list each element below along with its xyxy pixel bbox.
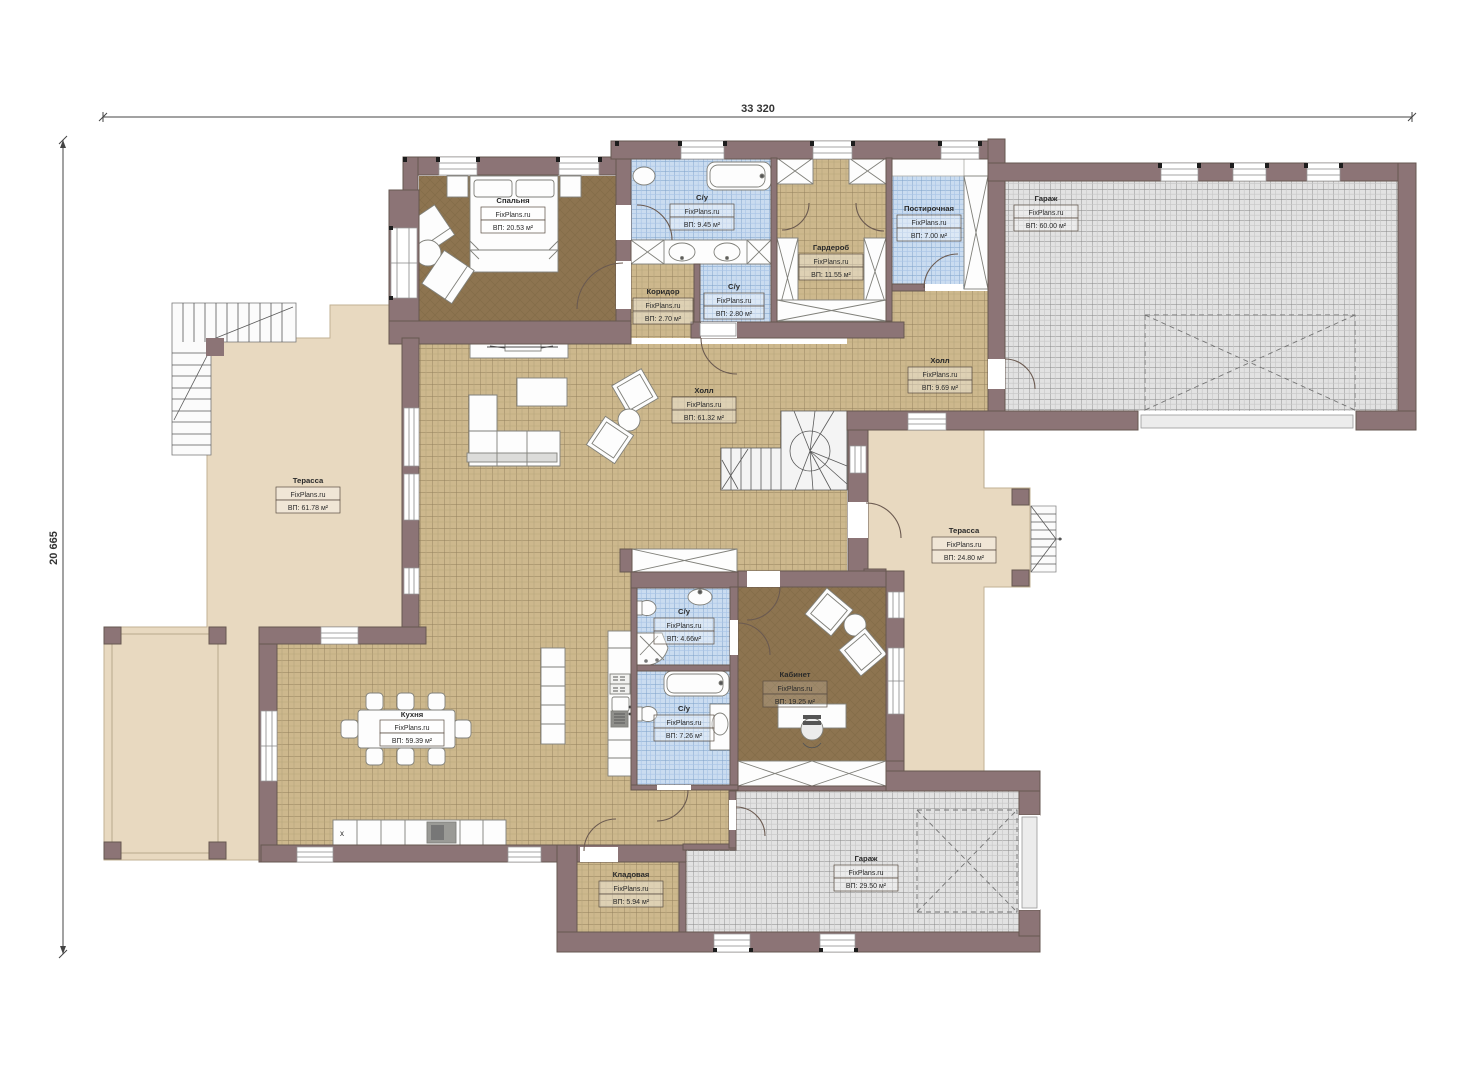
svg-text:FixPlans.ru: FixPlans.ru <box>684 209 719 216</box>
svg-text:FixPlans.ru: FixPlans.ru <box>666 720 701 727</box>
svg-text:ВП: 4.66м²: ВП: 4.66м² <box>667 636 702 643</box>
svg-text:Холл: Холл <box>930 356 949 365</box>
svg-text:ВП: 59.39 м²: ВП: 59.39 м² <box>392 738 433 745</box>
svg-text:FixPlans.ru: FixPlans.ru <box>686 402 721 409</box>
svg-text:FixPlans.ru: FixPlans.ru <box>848 870 883 877</box>
svg-text:FixPlans.ru: FixPlans.ru <box>645 303 680 310</box>
svg-text:20 665: 20 665 <box>48 531 60 565</box>
svg-text:ВП: 61.78 м²: ВП: 61.78 м² <box>288 505 329 512</box>
svg-text:ВП: 24.80 м²: ВП: 24.80 м² <box>944 555 985 562</box>
svg-text:ВП: 2.80 м²: ВП: 2.80 м² <box>716 311 753 318</box>
svg-text:FixPlans.ru: FixPlans.ru <box>777 686 812 693</box>
svg-text:С/у: С/у <box>678 704 691 713</box>
svg-text:FixPlans.ru: FixPlans.ru <box>394 725 429 732</box>
svg-text:FixPlans.ru: FixPlans.ru <box>290 492 325 499</box>
svg-text:Гараж: Гараж <box>1035 194 1059 203</box>
svg-text:С/у: С/у <box>728 282 741 291</box>
svg-text:FixPlans.ru: FixPlans.ru <box>911 220 946 227</box>
svg-text:FixPlans.ru: FixPlans.ru <box>813 259 848 266</box>
svg-text:FixPlans.ru: FixPlans.ru <box>1028 210 1063 217</box>
svg-text:Постирочная: Постирочная <box>904 204 954 213</box>
svg-text:FixPlans.ru: FixPlans.ru <box>716 298 751 305</box>
svg-text:Холл: Холл <box>694 386 713 395</box>
svg-text:ВП: 11.55 м²: ВП: 11.55 м² <box>811 272 851 279</box>
svg-text:ВП: 20.53 м²: ВП: 20.53 м² <box>493 225 534 232</box>
svg-text:Терасса: Терасса <box>949 526 980 535</box>
svg-text:Терасса: Терасса <box>293 476 324 485</box>
svg-text:ВП: 29.50 м²: ВП: 29.50 м² <box>846 883 887 890</box>
svg-text:ВП: 19.25 м²: ВП: 19.25 м² <box>775 699 816 706</box>
svg-text:ВП: 60.00 м²: ВП: 60.00 м² <box>1026 223 1067 230</box>
svg-text:ВП: 9.69 м²: ВП: 9.69 м² <box>922 385 959 392</box>
svg-text:FixPlans.ru: FixPlans.ru <box>946 542 981 549</box>
svg-text:С/у: С/у <box>696 193 709 202</box>
svg-text:ВП: 9.45 м²: ВП: 9.45 м² <box>684 222 721 229</box>
svg-text:ВП: 5.94 м²: ВП: 5.94 м² <box>613 899 650 906</box>
svg-text:ВП: 7.00 м²: ВП: 7.00 м² <box>911 233 948 240</box>
svg-text:ВП: 2.70 м²: ВП: 2.70 м² <box>645 316 682 323</box>
svg-text:FixPlans.ru: FixPlans.ru <box>495 212 530 219</box>
svg-text:x: x <box>340 829 344 838</box>
svg-text:ВП: 61.32 м²: ВП: 61.32 м² <box>684 415 725 422</box>
svg-text:Кухня: Кухня <box>401 710 423 719</box>
svg-text:Гараж: Гараж <box>855 854 879 863</box>
svg-text:Коридор: Коридор <box>646 287 679 296</box>
svg-text:FixPlans.ru: FixPlans.ru <box>666 623 701 630</box>
svg-text:FixPlans.ru: FixPlans.ru <box>922 372 957 379</box>
svg-text:С/у: С/у <box>678 607 691 616</box>
svg-text:FixPlans.ru: FixPlans.ru <box>613 886 648 893</box>
svg-text:ВП: 7.26 м²: ВП: 7.26 м² <box>666 733 703 740</box>
svg-text:Гардероб: Гардероб <box>813 243 850 252</box>
svg-text:Кабинет: Кабинет <box>779 670 810 679</box>
svg-text:Спальня: Спальня <box>496 196 529 205</box>
svg-text:33 320: 33 320 <box>741 103 775 115</box>
svg-text:Кладовая: Кладовая <box>613 870 650 879</box>
